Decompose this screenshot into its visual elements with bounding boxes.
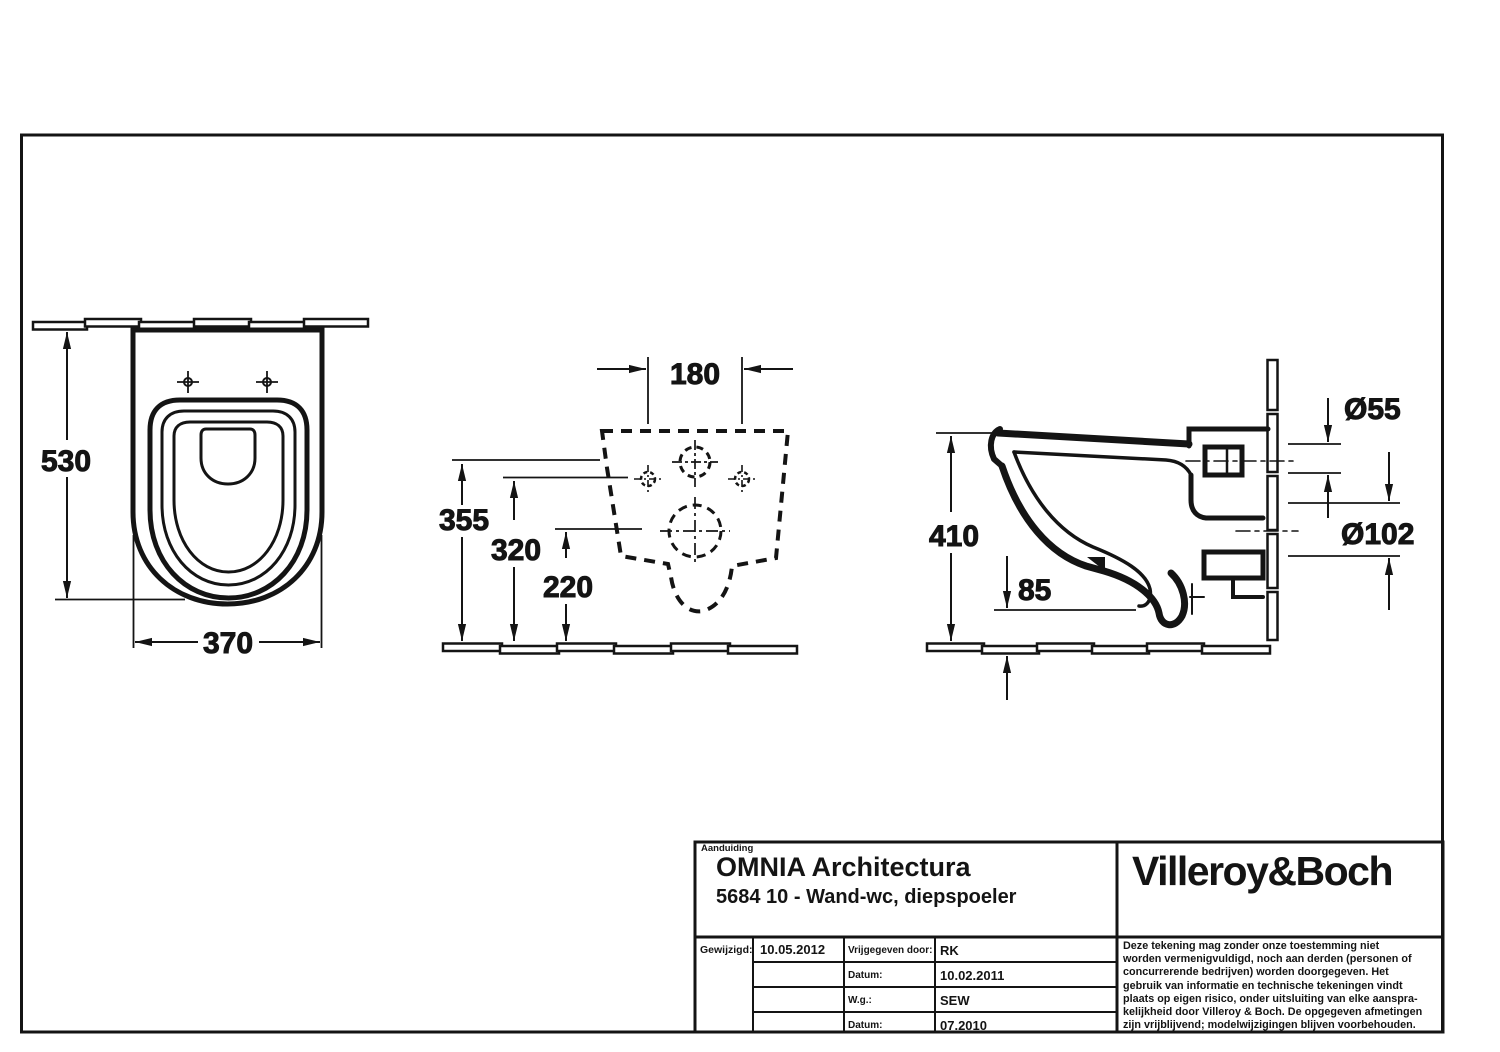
dimension-220: 220: [543, 529, 642, 641]
disclaimer-line: worden vermenigvuldigd, noch aan derden …: [1123, 953, 1441, 966]
table-value-released-by: RK: [940, 943, 959, 958]
drain-outlet-step: [1233, 578, 1263, 597]
rear-view: 180 355 320 220: [439, 357, 797, 654]
floor-hatch-segment: [927, 644, 984, 652]
profile-rear-ledge: [1189, 429, 1268, 446]
wall-hatch-segment: [1268, 360, 1278, 410]
modified-date: 10.05.2012: [760, 942, 825, 957]
technical-drawing-page: 530 370: [0, 0, 1500, 1052]
profile-rear-thin-lines: [1190, 584, 1204, 614]
brand-logo-text: Villeroy&Boch: [1132, 848, 1392, 895]
floor-hatch-segment: [671, 644, 730, 652]
profile-seat-line: [1014, 452, 1191, 475]
wall-hatch-segment: [1268, 534, 1278, 588]
dim-label-410: 410: [929, 520, 979, 553]
floor-hatch-segment: [614, 646, 673, 654]
floor-hatch-segment: [1147, 644, 1204, 652]
disclaimer-line: plaats op eigen risico, onder uitsluitin…: [1123, 993, 1441, 1006]
wall-hatch-segment: [85, 319, 141, 327]
floor-hatch-segment: [728, 646, 797, 654]
rear-view-floor-hatch: [443, 644, 797, 654]
modified-label: Gewijzigd:: [700, 944, 753, 956]
wall-hatch-segment: [1268, 476, 1278, 530]
wall-hatch-segment: [1268, 592, 1278, 640]
disclaimer-text: Deze tekening mag zonder onze toestemmin…: [1123, 940, 1441, 1032]
dim-label-370: 370: [203, 627, 253, 660]
profile-top-rim: [998, 433, 1189, 444]
disclaimer-line: gebruik van informatie en technische tek…: [1123, 980, 1441, 993]
wall-hatch-segment: [33, 322, 87, 330]
table-label-date-2: Datum:: [848, 1020, 882, 1031]
wall-hatch-segment: [194, 319, 251, 327]
floor-hatch-segment: [443, 644, 502, 652]
floor-hatch-segment: [557, 644, 616, 652]
dim-label-530: 530: [41, 445, 91, 478]
side-view-floor-hatch: [927, 644, 1270, 654]
top-view: 530 370: [33, 319, 368, 660]
side-view: 410 85 Ø55 Ø102: [927, 360, 1414, 700]
table-value-wg: SEW: [940, 993, 970, 1008]
dim-label-85: 85: [1018, 574, 1051, 607]
wall-hatch-segment: [304, 319, 368, 327]
table-label-wg: W.g.:: [848, 995, 872, 1006]
table-value-date-1: 10.02.2011: [940, 968, 1004, 983]
side-view-wall-hatch: [1268, 360, 1278, 640]
dim-label-d102: Ø102: [1341, 518, 1414, 551]
profile-rear-band: [1191, 475, 1263, 518]
disclaimer-line: concurrerende bedrijven) worden doorgege…: [1123, 966, 1441, 979]
floor-hatch-segment: [982, 646, 1039, 654]
disclaimer-line: kelijkheid door Villeroy & Boch. De opge…: [1123, 1006, 1441, 1019]
drain-outlet-pipe: [1204, 552, 1263, 578]
disclaimer-line: zijn vrijblijvend; modelwijzigingen blij…: [1123, 1019, 1441, 1032]
table-label-date-1: Datum:: [848, 970, 882, 981]
floor-hatch-segment: [1037, 644, 1094, 652]
wall-hatch-segment: [1268, 414, 1278, 472]
floor-hatch-segment: [500, 646, 559, 654]
disclaimer-line: Deze tekening mag zonder onze toestemmin…: [1123, 940, 1441, 953]
dimension-d55: Ø55: [1288, 393, 1401, 518]
dimension-320: 320: [491, 478, 628, 642]
table-value-date-2: 07.2010: [940, 1018, 987, 1033]
dimension-410: 410: [929, 433, 992, 641]
product-name: OMNIA Architectura: [716, 852, 971, 883]
dim-label-d55: Ø55: [1344, 393, 1401, 426]
dimension-d102: Ø102: [1288, 452, 1414, 610]
dim-label-180: 180: [670, 358, 720, 391]
dim-label-355: 355: [439, 504, 489, 537]
dim-label-320: 320: [491, 534, 541, 567]
table-label-released-by: Vrijgegeven door:: [848, 945, 932, 956]
dim-label-220: 220: [543, 571, 593, 604]
floor-hatch-segment: [1092, 646, 1149, 654]
floor-hatch-segment: [1202, 646, 1270, 654]
product-code: 5684 10 - Wand-wc, diepspoeler: [716, 886, 1016, 909]
dimension-180: 180: [597, 357, 793, 424]
